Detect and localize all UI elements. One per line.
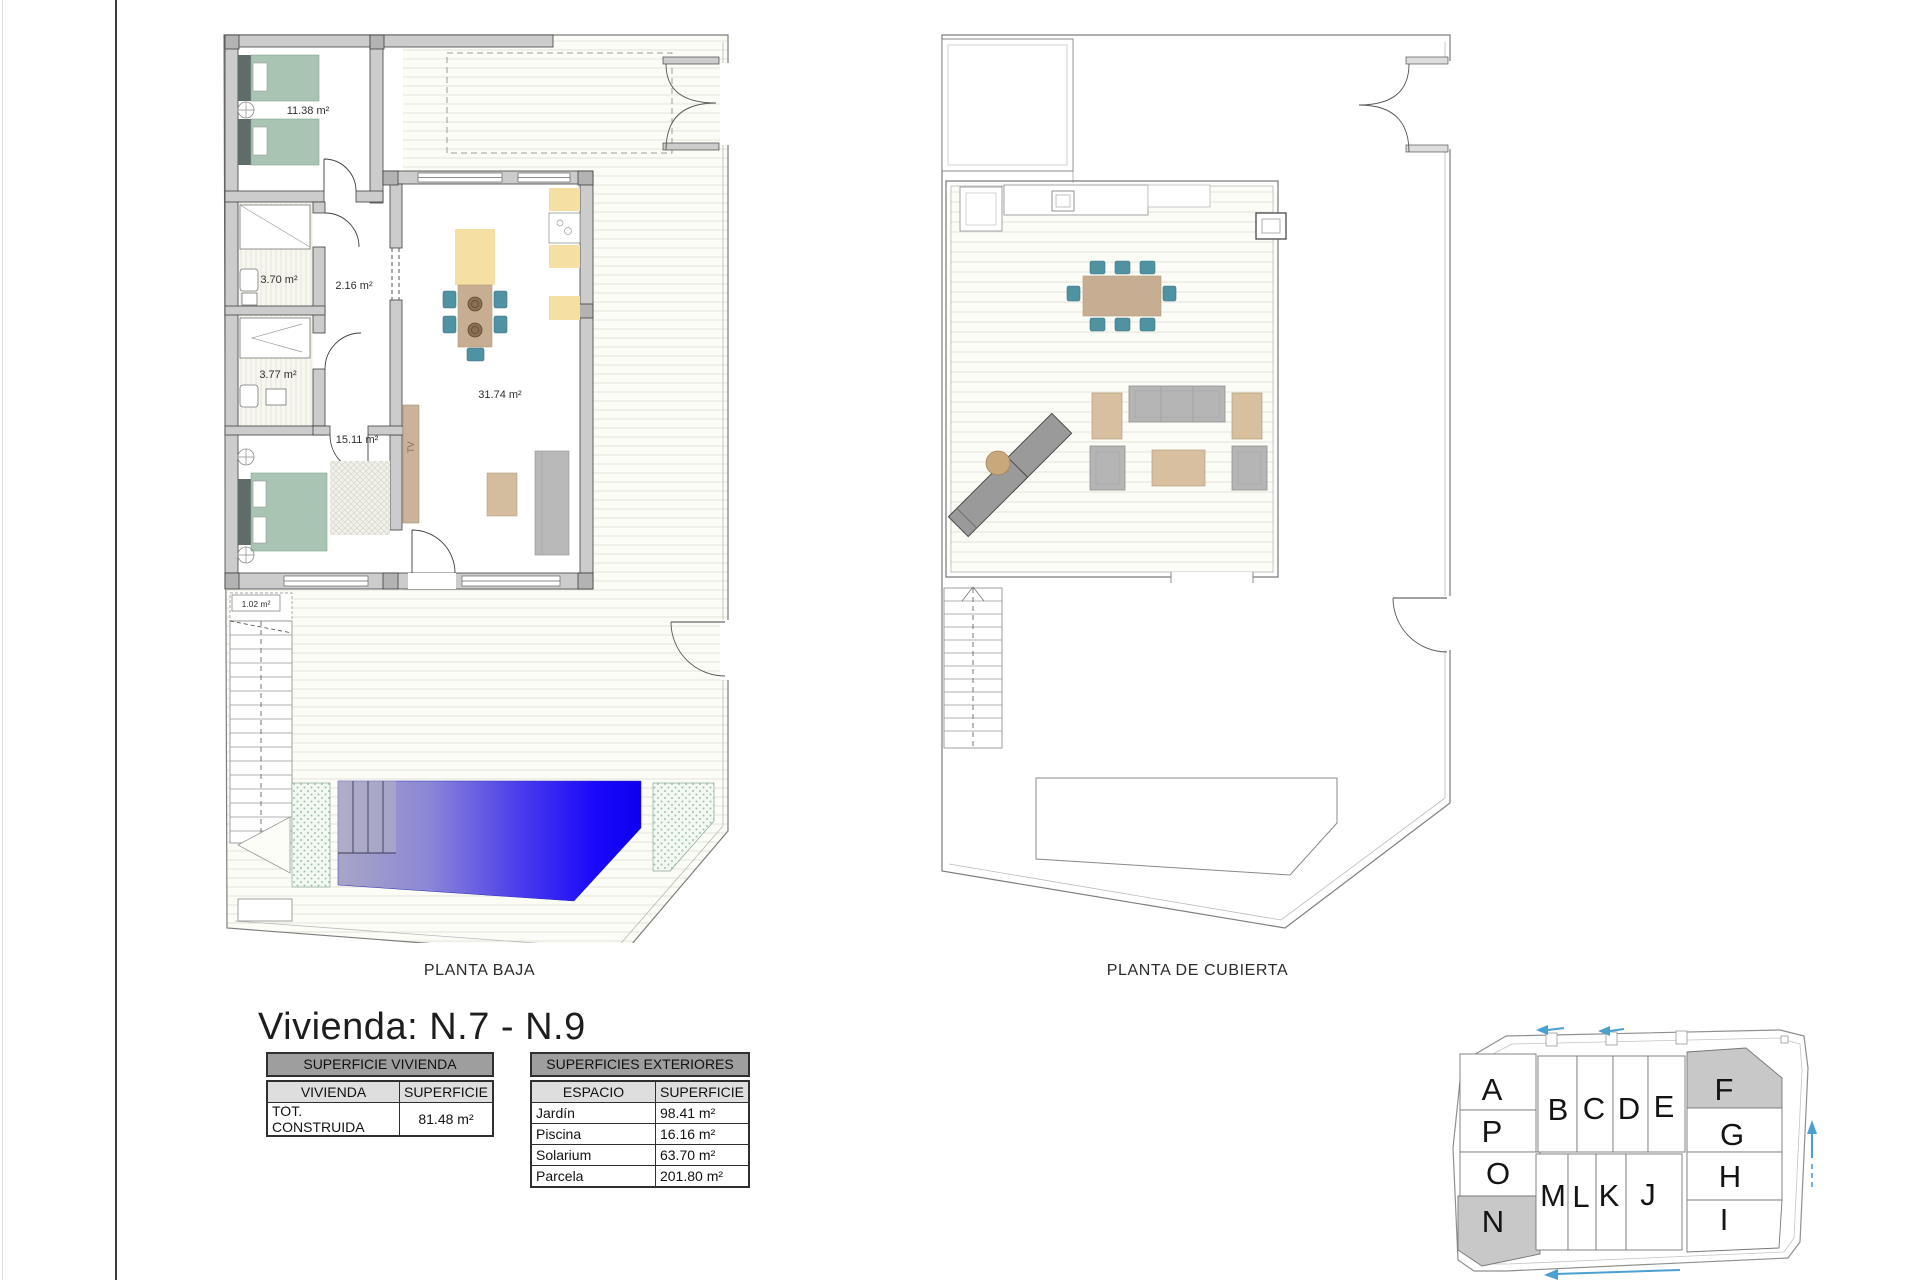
arrow-bottom-left-icon: [1544, 1269, 1680, 1280]
plot-letter-H: H: [1719, 1159, 1741, 1194]
plot-letter-C: C: [1583, 1091, 1605, 1126]
row-label: TOT. CONSTRUIDA: [267, 1103, 399, 1137]
sheet-edge-line: [2, 0, 3, 1280]
caption-planta-baja: PLANTA BAJA: [222, 962, 737, 980]
planta-baja-plan: TV 1.02 m²: [222, 33, 737, 943]
plot-letter-F: F: [1715, 1072, 1734, 1107]
row-value: 63.70 m²: [655, 1145, 749, 1166]
planter-left: [292, 783, 330, 887]
plot-letter-L: L: [1572, 1179, 1589, 1214]
row-label: Jardín: [531, 1103, 655, 1124]
drawing-sheet: TV 1.02 m²: [0, 0, 1920, 1280]
bedroom2-area-label: 15.11 m²: [336, 434, 379, 446]
exterior-stairs: [944, 587, 1002, 748]
sheet-border-line: [115, 0, 117, 1280]
row-label: Piscina: [531, 1124, 655, 1145]
col-header: ESPACIO: [531, 1081, 655, 1103]
row-value: 98.41 m²: [655, 1103, 749, 1124]
plot-letter-K: K: [1599, 1178, 1620, 1213]
plot-letter-P: P: [1482, 1114, 1503, 1149]
plot-letter-N: N: [1482, 1204, 1504, 1239]
col-header: VIVIENDA: [267, 1081, 399, 1103]
table-superficies-exteriores: SUPERFICIES EXTERIORES ESPACIO SUPERFICI…: [530, 1052, 750, 1188]
bath2-area-label: 3.77 m²: [259, 369, 297, 381]
plot-letter-D: D: [1618, 1091, 1640, 1126]
row-value: 81.48 m²: [399, 1103, 493, 1137]
col-header: SUPERFICIE: [399, 1081, 493, 1103]
plot-letter-I: I: [1720, 1202, 1729, 1237]
parapet-opening: [1171, 572, 1253, 583]
bedroom1-area-label: 11.38 m²: [287, 105, 330, 117]
plot-letter-E: E: [1654, 1089, 1675, 1124]
col-header: SUPERFICIE: [655, 1081, 749, 1103]
hall-area-label: 2.16 m²: [335, 280, 373, 292]
stairs-area-label: 1.02 m²: [242, 599, 271, 609]
caption-planta-cubierta: PLANTA DE CUBIERTA: [940, 962, 1455, 980]
tv-unit: [403, 405, 419, 523]
boundary-notch: [238, 899, 292, 921]
page-title: Vivienda: N.7 - N.9: [258, 1006, 586, 1049]
row-value: 201.80 m²: [655, 1166, 749, 1188]
plot-letter-O: O: [1486, 1156, 1510, 1191]
exterior-stairs: 1.02 m²: [230, 593, 292, 843]
row-label: Parcela: [531, 1166, 655, 1188]
row-label: Solarium: [531, 1145, 655, 1166]
table-superficie-vivienda: SUPERFICIE VIVIENDA VIVIENDA SUPERFICIE …: [266, 1052, 494, 1137]
arrow-right-up-icon: [1807, 1120, 1817, 1188]
tv-label: TV: [406, 441, 416, 453]
table-title: SUPERFICIES EXTERIORES: [530, 1052, 750, 1077]
table-row: Jardín 98.41 m²: [531, 1103, 749, 1124]
plot-I: [1687, 1200, 1782, 1252]
row-value: 16.16 m²: [655, 1124, 749, 1145]
plot-letter-M: M: [1540, 1178, 1566, 1213]
table-row: TOT. CONSTRUIDA 81.48 m²: [267, 1103, 493, 1137]
planta-cubierta-plan: [940, 33, 1455, 943]
plot-letter-B: B: [1548, 1092, 1569, 1127]
pool-outline: [1036, 778, 1337, 875]
solarium-terrace: [946, 181, 1278, 583]
table-title: SUPERFICIE VIVIENDA: [266, 1052, 494, 1077]
table-row: Solarium 63.70 m²: [531, 1145, 749, 1166]
plot-letter-J: J: [1640, 1177, 1656, 1212]
parapet-unit: [1256, 213, 1286, 239]
plot-letter-G: G: [1720, 1117, 1744, 1152]
living-area-label: 31.74 m²: [478, 389, 522, 401]
table-row: Parcela 201.80 m²: [531, 1166, 749, 1188]
terrace-door-gap: [408, 573, 456, 589]
site-plan-key: A P O N B C D E M L K J F G H I: [1448, 1024, 1828, 1280]
plot-letter-A: A: [1482, 1072, 1503, 1107]
lower-roof-block: [942, 39, 1073, 183]
bath1-area-label: 3.70 m²: [260, 274, 298, 286]
table-row: Piscina 16.16 m²: [531, 1124, 749, 1145]
